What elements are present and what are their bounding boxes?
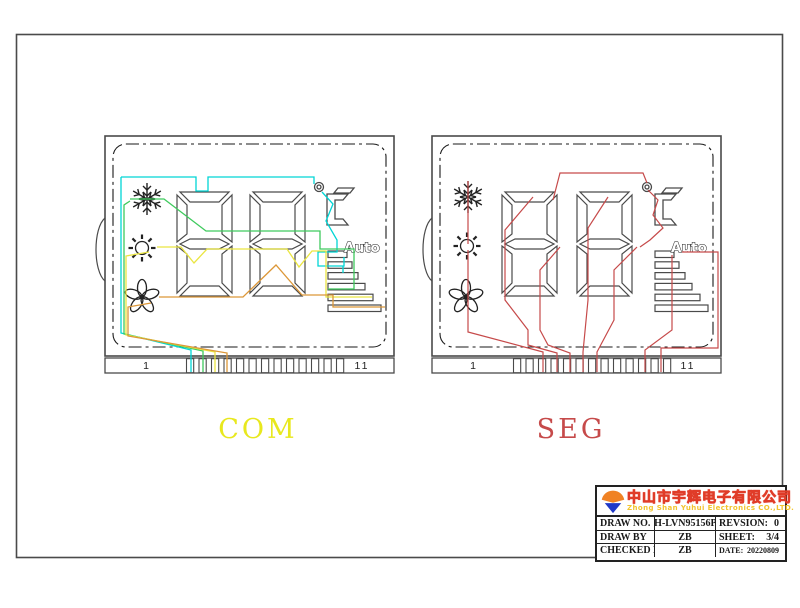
com-trace-green [124,199,354,372]
auto-label: Auto [344,240,380,256]
seven-segment-digit [577,192,632,296]
date-cell: DATE: 20220809 [715,543,785,556]
seven-segment-digit [250,192,305,296]
company-name-en: Zhong Shan Yuhui Electronics CO.,LTD. [627,505,783,512]
sheet-label: SHEET: [719,532,755,543]
draw-no-value: YH-LVN95156PA [654,517,715,530]
pin-number-last: 11 [355,360,370,372]
company-name-cn: 中山市宇辉电子有限公司 [627,491,783,505]
degree-celsius-icon [643,183,683,226]
checked-by-label: CHECKED BY [597,543,654,556]
revision-cell: REVSION: 0 [715,517,785,530]
seg-caption: SEG [537,414,606,445]
drawing-sheet: Auto 1 11 [0,0,800,608]
title-block-table: DRAW NO. YH-LVN95156PA REVSION: 0 DRAW B… [597,517,785,557]
revision-value: 0 [774,518,779,529]
revision-label: REVSION: [719,518,768,529]
title-block: 中山市宇辉电子有限公司 Zhong Shan Yuhui Electronics… [595,485,787,562]
date-label: DATE: [719,546,743,555]
draw-by-label: DRAW BY [597,530,654,543]
draw-by-value: ZB [654,530,715,543]
com-caption: COM [218,414,297,445]
sun-icon [129,235,156,262]
title-block-header: 中山市宇辉电子有限公司 Zhong Shan Yuhui Electronics… [597,487,785,517]
fan-icon [124,280,160,314]
sheet-cell: SHEET: 3/4 [715,530,785,543]
fan-icon [448,280,484,314]
checked-by-value: ZB [654,543,715,556]
pin-number-last: 11 [681,360,696,372]
com-panel: Auto 1 11 [96,136,394,373]
fan-speed-bars-icon [655,251,708,312]
degree-celsius-icon [315,183,355,226]
seg-panel: Auto 1 11 [423,136,721,373]
seven-segment-digit [502,192,557,296]
pin-number-first: 1 [143,360,149,372]
sun-icon [454,233,481,260]
date-value: 20220809 [747,546,779,555]
pin-number-first: 1 [470,360,476,372]
seven-segment-digit [177,192,232,296]
company-logo-icon [599,488,627,514]
draw-no-label: DRAW NO. [597,517,654,530]
auto-label: Auto [671,240,707,256]
sheet-value: 3/4 [766,532,779,543]
